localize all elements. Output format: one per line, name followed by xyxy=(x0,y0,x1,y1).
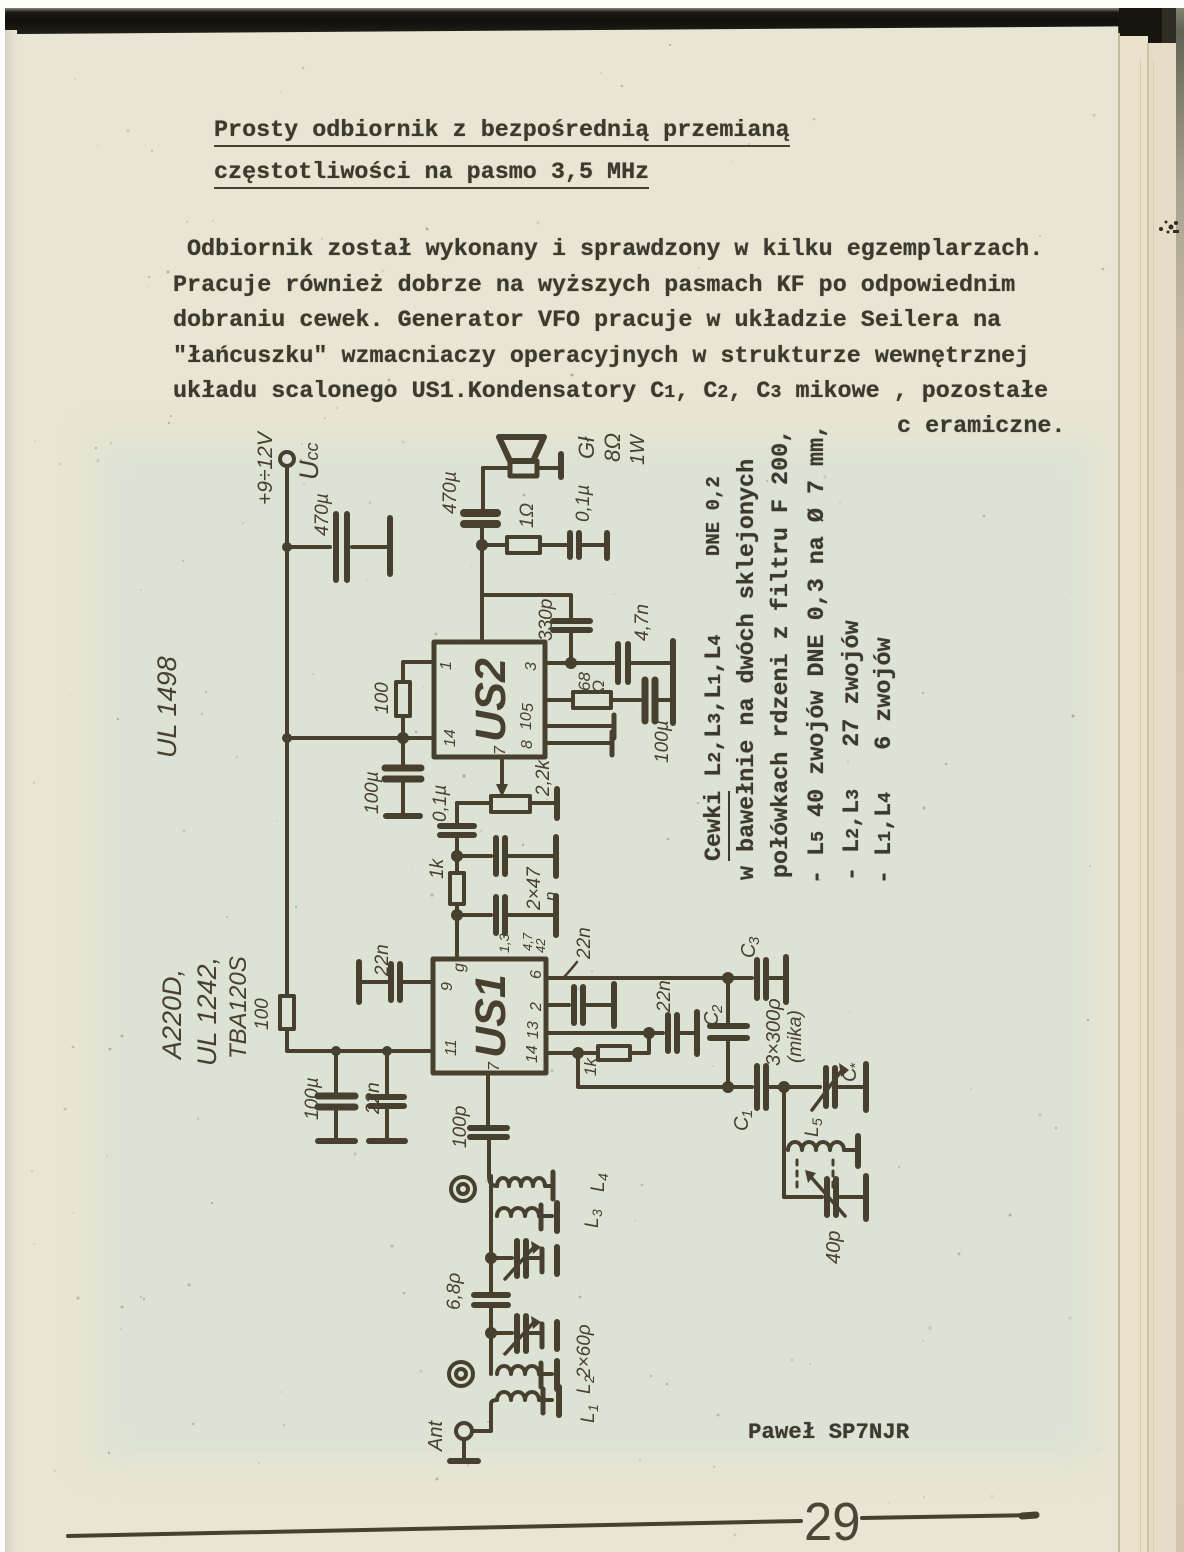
svg-text:2,2k: 2,2k xyxy=(533,759,554,797)
svg-text:9: 9 xyxy=(439,982,456,991)
svg-text:14: 14 xyxy=(524,1045,541,1063)
svg-text:5: 5 xyxy=(809,1118,825,1126)
svg-text:10: 10 xyxy=(518,712,535,730)
svg-text:1Ω: 1Ω xyxy=(517,503,538,528)
svg-text:A220D,: A220D, xyxy=(157,969,187,1061)
svg-text:US1: US1 xyxy=(467,974,515,1058)
svg-text:L: L xyxy=(578,1412,599,1423)
svg-text:(mika): (mika) xyxy=(785,1010,806,1063)
svg-text:7: 7 xyxy=(492,745,509,755)
svg-text:US2: US2 xyxy=(467,658,515,742)
svg-text:5: 5 xyxy=(520,703,537,712)
svg-text:330p: 330p xyxy=(536,599,557,641)
svg-text:Gł: Gł xyxy=(574,436,599,459)
svg-text:8: 8 xyxy=(519,740,536,749)
svg-text:*: * xyxy=(847,1062,864,1069)
svg-text:22n: 22n xyxy=(363,1082,384,1115)
svg-text:1: 1 xyxy=(438,661,455,670)
svg-text:100µ: 100µ xyxy=(652,720,673,763)
svg-text:3: 3 xyxy=(523,662,540,671)
svg-text:13: 13 xyxy=(525,1021,542,1039)
svg-text:1k: 1k xyxy=(427,857,448,879)
svg-text:L: L xyxy=(802,1126,823,1137)
svg-text:3: 3 xyxy=(746,936,763,945)
svg-text:+9÷12V: +9÷12V xyxy=(254,430,277,505)
svg-text:L: L xyxy=(574,1383,595,1394)
svg-text:L: L xyxy=(582,1217,603,1228)
svg-text:UL 1242,: UL 1242, xyxy=(192,957,222,1066)
svg-text:0,1µ: 0,1µ xyxy=(573,485,594,522)
svg-text:3×300ρ: 3×300ρ xyxy=(763,998,785,1066)
svg-text:g: g xyxy=(451,963,468,972)
svg-text:22n: 22n xyxy=(654,980,675,1013)
svg-text:TBA120S: TBA120S xyxy=(225,956,252,1059)
svg-text:1: 1 xyxy=(739,1110,756,1118)
svg-text:Ucc: Ucc xyxy=(294,443,324,481)
svg-text:470µ: 470µ xyxy=(440,471,461,514)
svg-text:40p: 40p xyxy=(823,1231,845,1264)
svg-text:2: 2 xyxy=(581,1375,597,1384)
svg-text:UL 1498: UL 1498 xyxy=(152,656,182,758)
svg-text:100p: 100p xyxy=(450,1106,471,1148)
svg-text:6,8ρ: 6,8ρ xyxy=(444,1273,465,1310)
svg-text:100: 100 xyxy=(372,682,393,714)
svg-text:0,1µ: 0,1µ xyxy=(430,785,451,822)
svg-text:2×47: 2×47 xyxy=(524,866,545,911)
svg-text:n: n xyxy=(541,892,560,901)
svg-text:Ant: Ant xyxy=(425,1420,447,1452)
svg-text:1k: 1k xyxy=(581,1057,600,1076)
svg-text:100µ: 100µ xyxy=(362,771,383,814)
svg-text:29: 29 xyxy=(804,1493,860,1552)
svg-text:8Ω: 8Ω xyxy=(600,433,625,462)
svg-text:2: 2 xyxy=(528,1002,545,1012)
svg-text:1,3: 1,3 xyxy=(496,933,512,953)
svg-text:22n: 22n xyxy=(574,927,595,960)
svg-text:L: L xyxy=(588,1181,609,1192)
svg-text:1W: 1W xyxy=(627,433,649,465)
svg-text:2: 2 xyxy=(709,1004,726,1014)
svg-text:42: 42 xyxy=(533,938,548,953)
svg-text:1: 1 xyxy=(585,1404,601,1412)
svg-text:3: 3 xyxy=(589,1209,605,1217)
svg-text:14: 14 xyxy=(442,729,459,747)
svg-text:7: 7 xyxy=(486,1061,503,1071)
svg-text:4: 4 xyxy=(595,1173,611,1181)
svg-text:22n: 22n xyxy=(372,944,393,977)
svg-text:6: 6 xyxy=(528,970,545,979)
svg-text:Ω: Ω xyxy=(589,680,608,693)
svg-text:2×60ρ: 2×60ρ xyxy=(574,1324,595,1379)
svg-text:4,7n: 4,7n xyxy=(632,604,653,641)
svg-text:100µ: 100µ xyxy=(302,1077,323,1120)
svg-text:100: 100 xyxy=(252,998,273,1030)
svg-text:470µ: 470µ xyxy=(312,493,333,536)
